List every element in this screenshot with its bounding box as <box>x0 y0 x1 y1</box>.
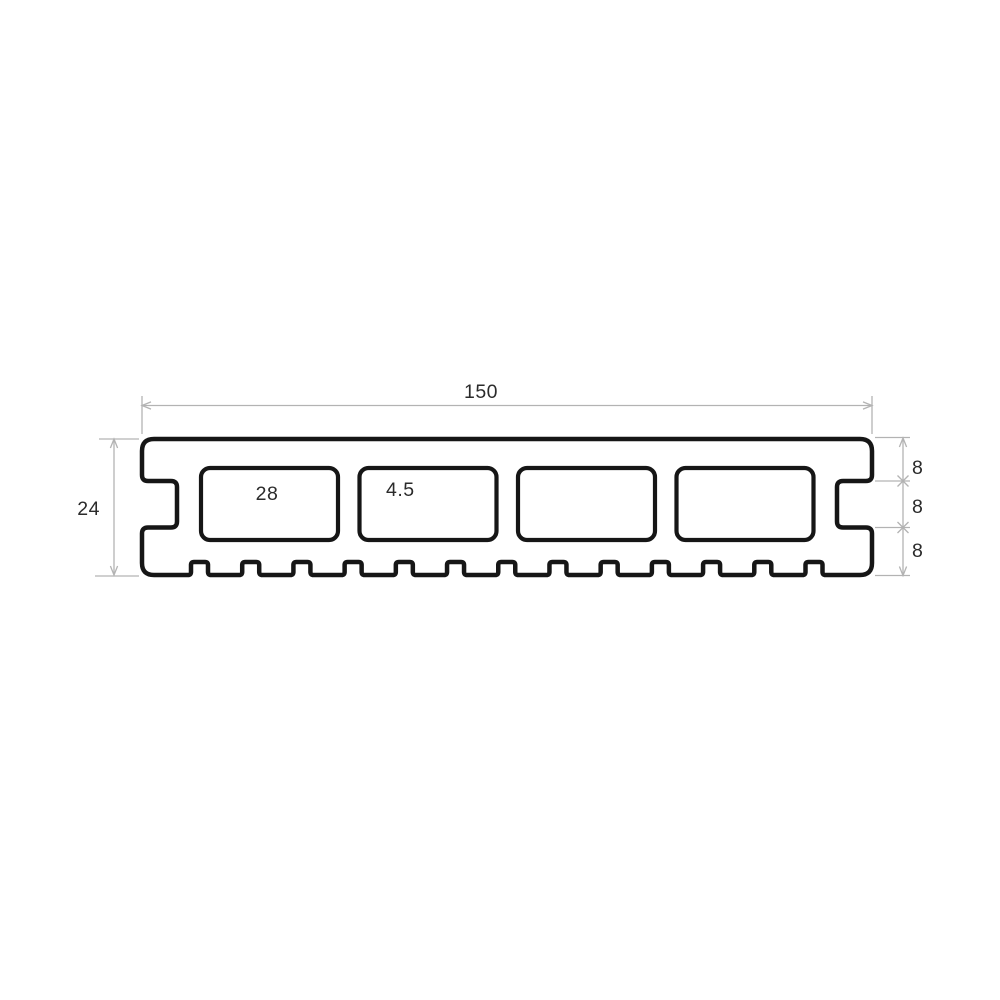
overall-height-label: 24 <box>77 498 100 520</box>
groove-height-label: 8 <box>912 496 923 518</box>
wall-bottom-label: 8 <box>912 540 923 562</box>
profile-cross-section-drawing: 150 24 28 4.5 8 8 8 <box>0 0 1000 1000</box>
cavity-gap-label: 4.5 <box>386 479 415 501</box>
cavity-3 <box>518 468 655 540</box>
cavity-4 <box>677 468 814 540</box>
overall-width-label: 150 <box>464 381 498 403</box>
wall-top-label: 8 <box>912 457 923 479</box>
drawing-canvas: 150 24 28 4.5 8 8 8 <box>0 0 1000 1000</box>
board-profile-layer <box>142 439 872 575</box>
cavity-2 <box>360 468 497 540</box>
cavity-width-label: 28 <box>256 483 279 505</box>
